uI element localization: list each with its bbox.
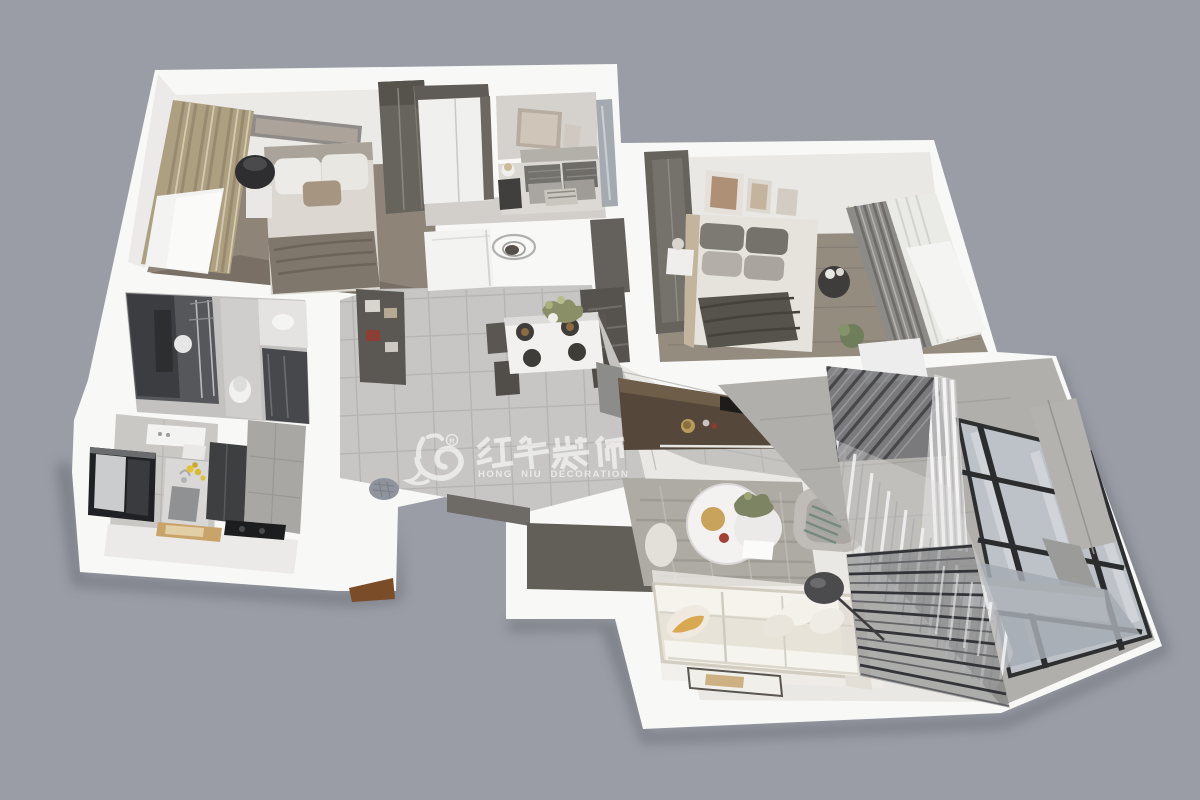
svg-text:HONG NIU DECORATION: HONG NIU DECORATION	[478, 469, 629, 480]
svg-text:R: R	[449, 437, 455, 446]
